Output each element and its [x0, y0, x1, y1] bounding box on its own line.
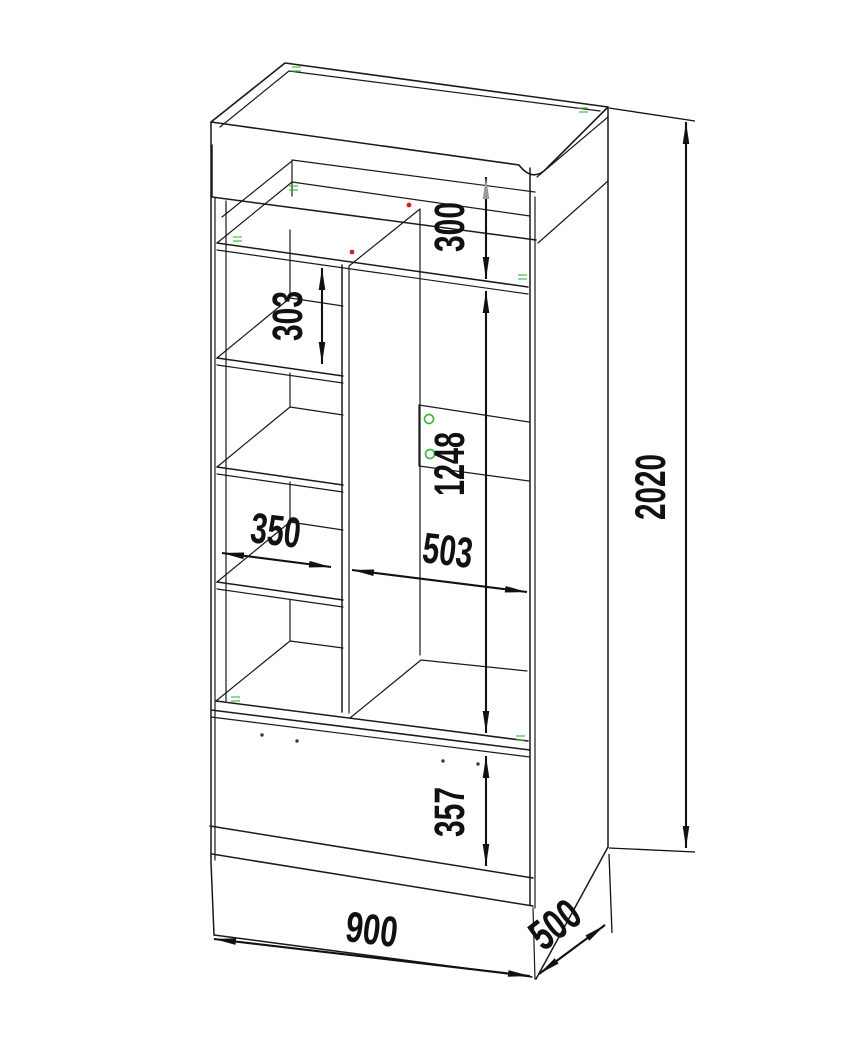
front-left-edge: [211, 122, 214, 935]
hinge-hole-icon: [425, 415, 434, 424]
dimension-overall-height: 2020: [609, 108, 695, 852]
top-niche: [217, 160, 535, 294]
right-side-panel: [530, 107, 608, 979]
dimension-shelf-spacing: 303: [264, 268, 322, 364]
dim-label-503: 503: [420, 524, 475, 578]
ext-line-2020-bottom: [609, 848, 695, 852]
drawer-dowel-dot: [476, 762, 479, 765]
ext-line-2020-top: [609, 108, 695, 121]
floor-left-diagonal: [216, 641, 290, 701]
rail-top-edge: [419, 405, 529, 422]
shelf-c-back: [290, 407, 343, 415]
niche-shelf-front-edge: [217, 243, 528, 287]
niche-shelf-front-edge2: [217, 250, 528, 294]
shelf-d-front: [217, 582, 343, 600]
drawer-dowel-dot: [441, 759, 444, 762]
top-panel-face: [211, 63, 608, 175]
floor-left-back-edge: [290, 641, 343, 648]
bottom-panel: [216, 641, 528, 741]
dim-label-350: 350: [248, 504, 303, 558]
drawer-top-edge2: [211, 717, 530, 757]
dimension-niche-height: 300: [426, 177, 486, 279]
dim-label-2020: 2020: [627, 454, 675, 520]
shelf-c-diagonal: [217, 407, 290, 467]
side-top-edge: [538, 181, 608, 243]
red-mark-icon: [350, 250, 355, 255]
center-divider: [342, 209, 420, 713]
dimension-left-section-width: 350: [222, 504, 331, 567]
dim-label-300: 300: [426, 202, 474, 252]
drawer-dowel-dot: [260, 733, 263, 736]
divider-top-diagonal: [349, 209, 420, 266]
dimensions: 300 303 1248 350 503 357 2020: [214, 108, 695, 976]
drawer-bottom-edge: [210, 826, 533, 878]
plinth-top-edge: [212, 854, 533, 906]
dim-label-900: 900: [343, 903, 400, 957]
dimension-drawer-height: 357: [426, 756, 486, 866]
niche-ceiling-diagonal: [222, 161, 292, 217]
red-mark-icon: [407, 203, 412, 208]
shelf-b-front: [217, 358, 343, 376]
dim-label-1248: 1248: [426, 432, 474, 496]
ext-line-500: [609, 854, 612, 933]
shelf-c-front: [217, 467, 343, 485]
dimension-right-section-height: 1248: [426, 291, 486, 733]
dimension-right-section-width: 503: [352, 524, 527, 592]
floor-right-back-edge: [421, 660, 527, 671]
cabinet-dimension-drawing: 300 303 1248 350 503 357 2020: [0, 0, 843, 1047]
dimension-overall-width: 900: [214, 903, 530, 976]
floor-right-diagonal: [350, 660, 421, 718]
top-panel: [211, 63, 608, 243]
drawer-top-edge: [211, 710, 530, 750]
drawer-dowel-dot: [295, 739, 298, 742]
dim-label-357: 357: [426, 787, 474, 837]
dim-label-303: 303: [264, 291, 312, 341]
